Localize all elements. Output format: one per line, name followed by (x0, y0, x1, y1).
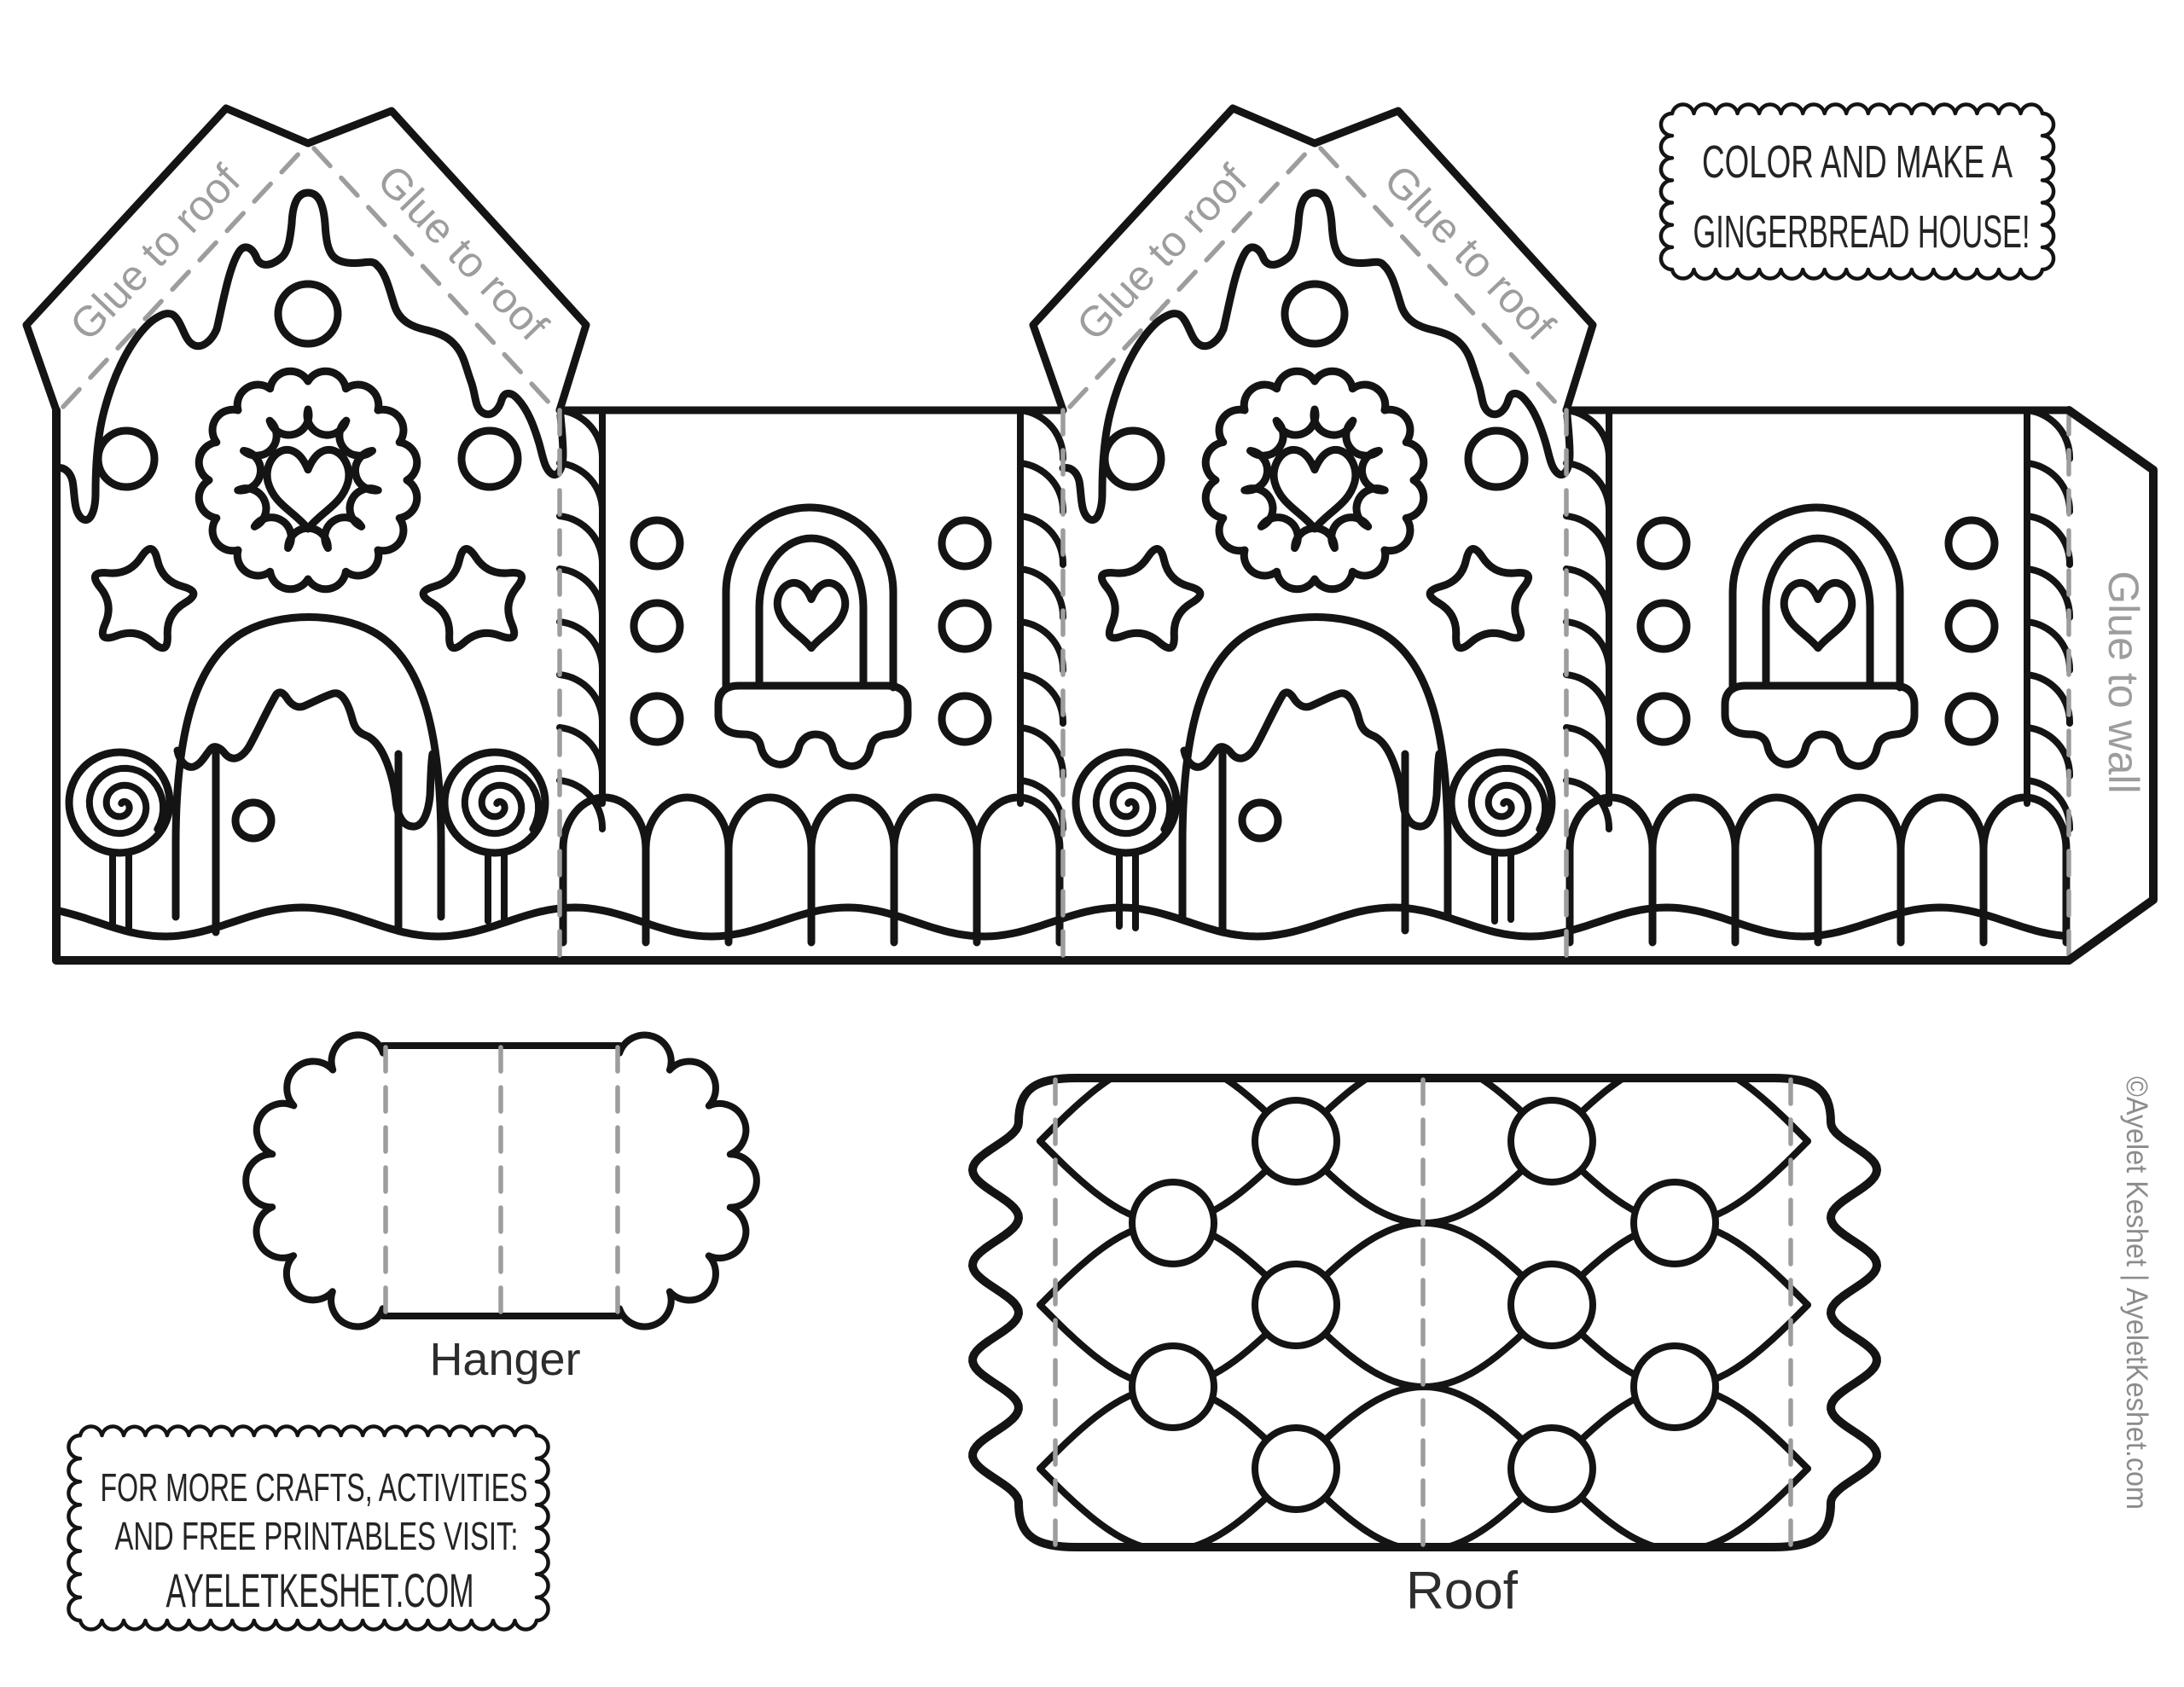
svg-text:COLOR AND MAKE A: COLOR AND MAKE A (1702, 136, 2013, 188)
svg-text:Glue to wall: Glue to wall (2100, 571, 2147, 793)
svg-text:Roof: Roof (1406, 1562, 1519, 1620)
svg-text:AND FREE PRINTABLES VISIT:: AND FREE PRINTABLES VISIT: (115, 1514, 519, 1558)
svg-text:©Ayelet Keshet | AyeletKeshet.: ©Ayelet Keshet | AyeletKeshet.com (2120, 1076, 2153, 1510)
svg-text:Hanger: Hanger (429, 1334, 580, 1385)
svg-text:FOR MORE CRAFTS, ACTIVITIES: FOR MORE CRAFTS, ACTIVITIES (101, 1465, 528, 1510)
svg-text:GINGERBREAD HOUSE!: GINGERBREAD HOUSE! (1693, 206, 2030, 258)
svg-text:AYELETKESHET.COM: AYELETKESHET.COM (166, 1563, 474, 1617)
